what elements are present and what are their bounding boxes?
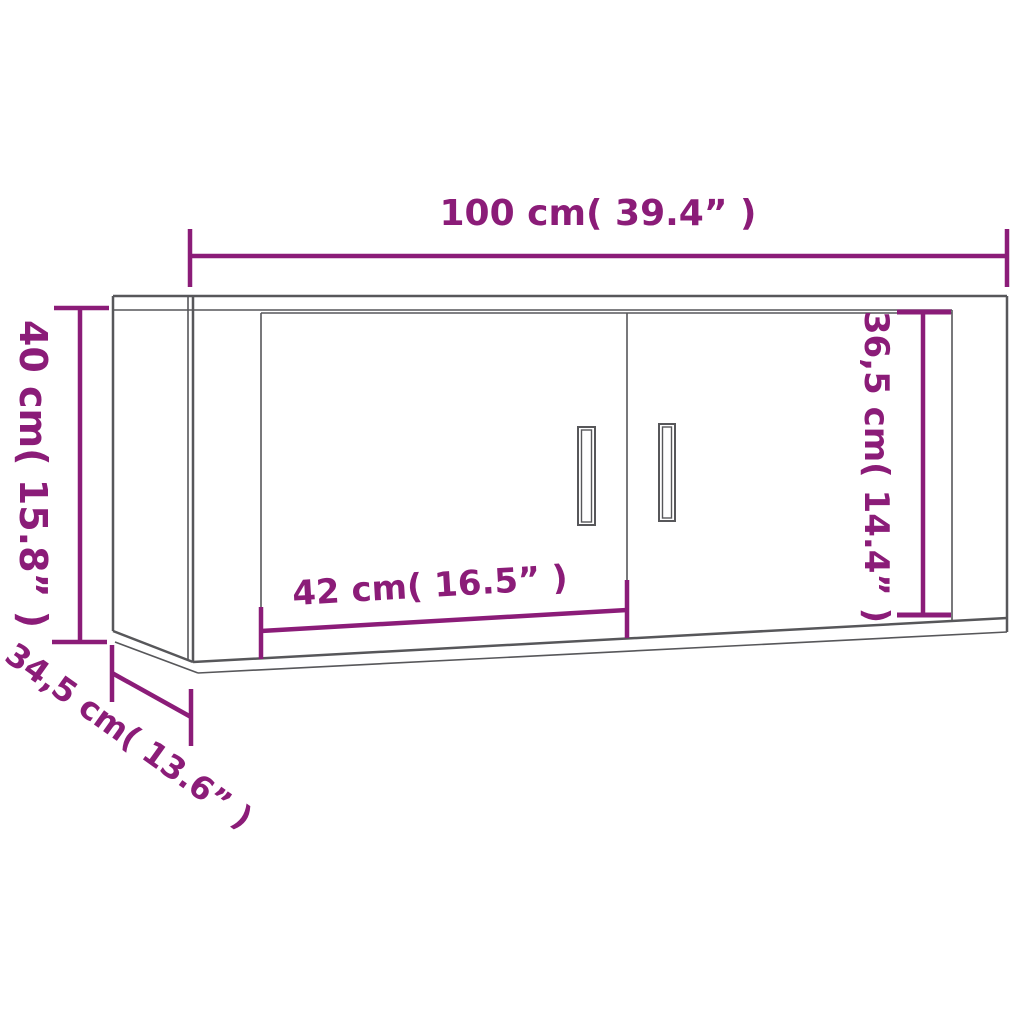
width-dimension (190, 229, 1007, 287)
left-door-handle (578, 427, 595, 525)
height-dimension-label: 40 cm( 15.8” ) (14, 320, 52, 628)
door-width-dimension-line (261, 610, 627, 631)
inner-height-dimension-label: 36,5 cm( 14.4” ) (859, 311, 893, 623)
height-dimension (52, 308, 109, 642)
left-handle-inner (582, 430, 592, 522)
cabinet-bottom-thickness-edge (198, 632, 1007, 673)
width-dimension-label: 100 cm( 39.4” ) (440, 196, 757, 232)
product-dimension-diagram: 100 cm( 39.4” ) 40 cm( 15.8” ) 36,5 cm( … (0, 0, 1024, 1024)
inner-height-dimension (897, 312, 951, 615)
right-door-handle (659, 424, 675, 521)
right-handle-inner (663, 427, 672, 518)
cabinet-bottom-front-edge (193, 618, 1007, 662)
